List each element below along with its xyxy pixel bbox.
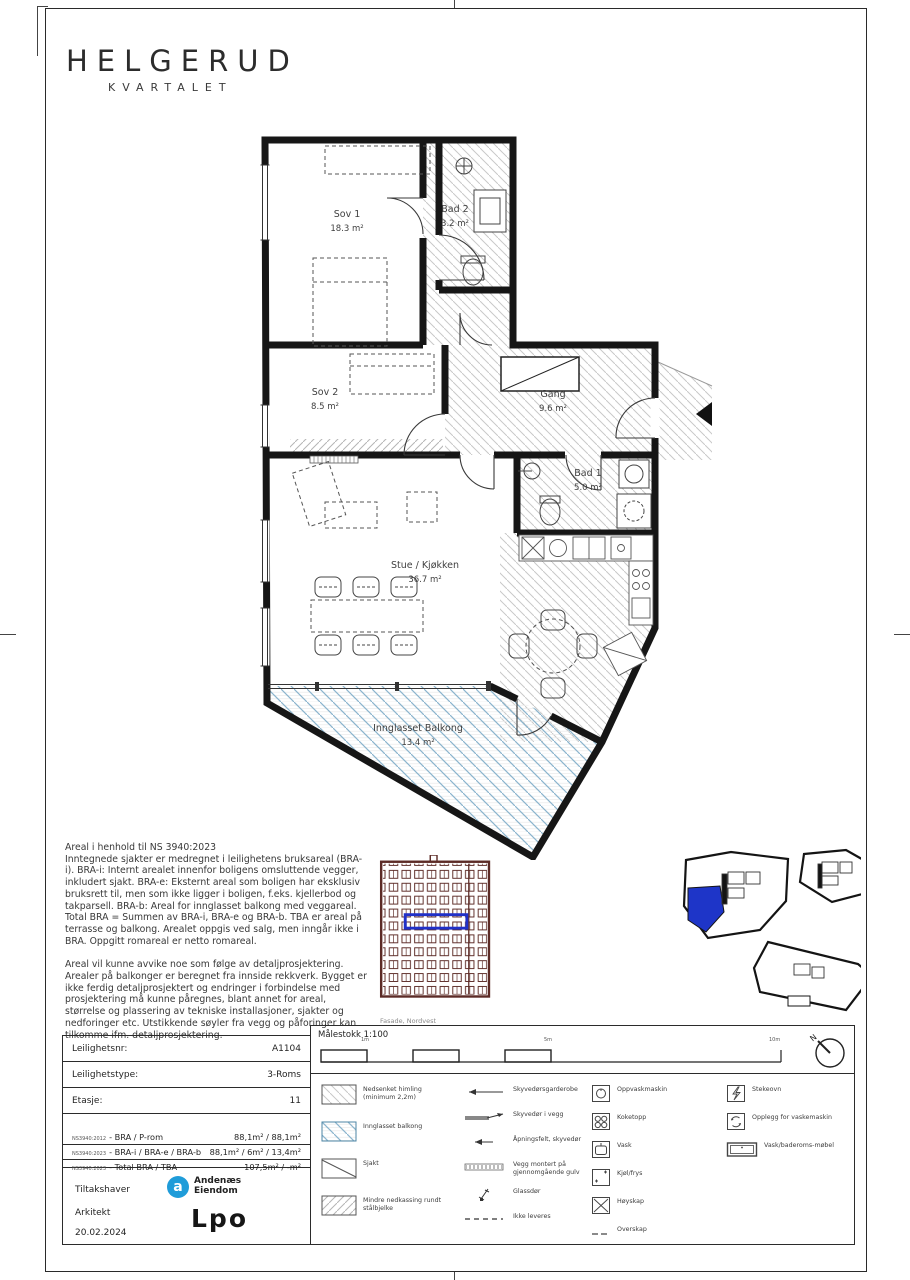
room-name: Bad 2 [441,203,469,218]
entry-opening [651,398,660,438]
legend-grid: Nedsenket himling (minimum 2,2m) Innglas… [311,1074,854,1252]
shaft-icon [321,1158,357,1180]
row-value: A1104 [272,1044,301,1054]
legend-label: Mindre nedkassing rundt stålbjelke [363,1195,445,1213]
tall-cabinet-icon [591,1196,611,1215]
room-label-stue-kjokken: Stue / Kjøkken 36.7 m² [391,559,459,587]
legend-label: Sjakt [363,1158,379,1168]
sliding-door-symbol [310,456,358,463]
legend-label: Høyskap [617,1196,644,1206]
legend-label: Overskap [617,1224,647,1234]
facade-elevation: Fasade, Nordvest [372,855,504,1025]
room-name: Innglasset Balkong [373,722,463,737]
room-name: Bad 1 [574,467,602,482]
not-delivered-icon [461,1211,507,1227]
key-plans [676,846,861,1016]
andenaes-logo-icon: a [167,1176,189,1198]
room-name: Sov 2 [311,386,339,401]
legend-label: Innglasset balkong [363,1121,422,1131]
crop-mark-bottom-center [454,1272,455,1280]
brand-logo: HELGERUD KVARTALET [66,44,299,94]
facade-svg [372,855,502,1009]
north-arrow-icon: N [804,1028,848,1072]
row-label: - BRA / P-rom [109,1132,163,1142]
beam-boxing-hatch-icon [321,1195,357,1217]
standard-ref: NS3940:2012 [72,1136,106,1142]
scale-tick-1m: 1m [361,1037,369,1043]
legend-label: Kjøl/frys [617,1168,642,1178]
row-value: 11 [290,1096,301,1106]
notes-title: Areal i henhold til NS 3940:2023 [65,842,367,854]
room-label-gang: Gang 9.6 m² [539,388,567,416]
apartment-info-table: Leilighetsnr: A1104 Leilighetstype: 3-Ro… [62,1035,310,1168]
legend-item: Koketopp [591,1112,726,1131]
room-label-bad2: Bad 2 3.2 m² [441,203,469,231]
legend-label: Glassdør [513,1186,541,1196]
room-label-sov1: Sov 1 18.3 m² [330,208,363,236]
crop-mark-mid-right [894,634,910,635]
scale-bar [317,1044,787,1068]
legend-item: Skyvedør i vegg [461,1109,591,1125]
legend-column-1: Nedsenket himling (minimum 2,2m) Innglas… [321,1084,461,1252]
andenaes-logo: a Andenæs Eiendom [167,1176,241,1198]
legend-item: Vask/baderoms-møbel [726,1140,856,1159]
crop-mark-top-left-v [37,6,38,56]
crop-mark-top-center [454,0,455,8]
washing-machine-hookup-icon [726,1112,746,1131]
legend-label: Koketopp [617,1112,646,1122]
bathroom-vanity-icon [726,1140,758,1159]
area-notes: Areal i henhold til NS 3940:2023 Inntegn… [65,842,367,1053]
legend-item: Høyskap [591,1196,726,1215]
room-area: 36.7 m² [391,574,459,587]
cooktop-icon [591,1112,611,1131]
drawing-date: 20.02.2024 [75,1228,127,1238]
room-name: Sov 1 [330,208,363,223]
north-label: N [808,1033,818,1044]
legend-item: Ikke leveres [461,1211,591,1227]
wall-on-continuous-floor-icon [461,1159,507,1175]
legend-item: Åpningsfelt, skyvedør [461,1134,591,1150]
scale-tick-10m: 10m [769,1037,780,1043]
room-label-sov2: Sov 2 8.5 m² [311,386,339,414]
key-plans-svg [676,846,861,1016]
row-label: - BRA-i / BRA-e / BRA-b [109,1147,201,1157]
legend-label: Vask/baderoms-møbel [764,1140,834,1150]
table-row: Leilighetstype: 3-Roms [63,1062,310,1088]
legend-item: Nedsenket himling (minimum 2,2m) [321,1084,461,1106]
room-area: 18.3 m² [330,223,363,236]
role-tiltakshaver: Tiltakshaver [75,1185,130,1195]
plan-sheet: HELGERUD KVARTALET [0,0,910,1280]
row-label: Leilighetstype: [72,1070,138,1080]
brand-name: HELGERUD [66,44,299,78]
legend-item: Vask [591,1140,726,1159]
wall-cabinet-icon [591,1224,611,1243]
role-arkitekt: Arkitekt [75,1208,110,1218]
lowered-ceiling-hatch-icon [321,1084,357,1106]
sliding-wardrobe-door-icon [461,1084,507,1100]
legend-item: Mindre nedkassing rundt stålbjelke [321,1195,461,1217]
oven-icon [726,1084,746,1103]
pocket-door-icon [461,1109,507,1125]
room-name: Gang [539,388,567,403]
table-row: Leilighetsnr: A1104 [63,1036,310,1062]
legend-item: Innglasset balkong [321,1121,461,1143]
table-row-area: NS3940:2023 - BRA-i / BRA-e / BRA-b 88,1… [63,1145,310,1160]
row-value: 88,1m² / 88,1m² [234,1132,301,1142]
legend-label: Oppvaskmaskin [617,1084,667,1094]
notes-paragraph-1: Inntegnede sjakter er medregnet i leilig… [65,854,367,948]
legend-item: Opplegg for vaskemaskin [726,1112,856,1131]
legend-item: Stekeovn [726,1084,856,1103]
glazed-balcony-hatch-icon [321,1121,357,1143]
floorplan-svg [255,130,715,860]
standard-ref: NS3940:2023 [72,1151,106,1157]
title-block: Tiltakshaver Arkitekt 20.02.2024 a Anden… [62,1168,310,1245]
legend-label: Skyvedør i vegg [513,1109,564,1119]
facade-caption: Fasade, Nordvest [380,1017,504,1025]
room-area: 3.2 m² [441,218,469,231]
row-value: 3-Roms [267,1070,301,1080]
room-name: Stue / Kjøkken [391,559,459,574]
legend-label: Stekeovn [752,1084,781,1094]
fridge-freezer-icon [591,1168,611,1187]
room-label-balkong: Innglasset Balkong 13.4 m² [373,722,463,750]
row-label: Leilighetsnr: [72,1044,127,1054]
room-area: 8.5 m² [311,401,339,414]
dishwasher-icon [591,1084,611,1103]
legend-label: Skyvedørsgarderobe [513,1084,578,1094]
crop-mark-mid-left [0,634,16,635]
legend-item: Kjøl/frys [591,1168,726,1187]
table-spacer [63,1114,310,1130]
scale-tick-5m: 5m [544,1037,552,1043]
glass-door-icon [461,1186,507,1202]
room-label-bad1: Bad 1 5.0 m² [574,467,602,495]
legend-item: Oppvaskmaskin [591,1084,726,1103]
opening-sliding-door-icon [461,1134,507,1150]
legend-label: Nedsenket himling (minimum 2,2m) [363,1084,445,1102]
legend-label: Åpningsfelt, skyvedør [513,1134,581,1144]
legend-label: Vask [617,1140,632,1150]
room-area: 13.4 m² [373,737,463,750]
key-plan-3 [754,942,861,1010]
legend-label: Ikke leveres [513,1211,551,1221]
scale-title: Målestokk 1:100 [318,1030,388,1040]
room-area: 5.0 m² [574,482,602,495]
legend-item: Glassdør [461,1186,591,1202]
crop-mark-top-left-h [37,6,48,7]
legend-column-4: Stekeovn Opplegg for vaskemaskin Vask/ba… [726,1084,856,1252]
room-area: 9.6 m² [539,403,567,416]
lpo-logo: Lpo [191,1204,248,1233]
floorplan: Sov 1 18.3 m² Bad 2 3.2 m² Sov 2 8.5 m² … [255,130,715,860]
sink-icon [591,1140,611,1159]
table-row: Etasje: 11 [63,1088,310,1114]
legend-item: Overskap [591,1224,726,1243]
legend-column-2: Skyvedørsgarderobe Skyvedør i vegg Åpnin… [461,1084,591,1252]
legend-column-3: Oppvaskmaskin Koketopp Vask Kjøl/frys Hø… [591,1084,726,1252]
andenaes-logo-line2: Eiendom [194,1187,241,1197]
row-value: 88,1m² / 6m² / 13,4m² [210,1147,301,1157]
legend-label: Opplegg for vaskemaskin [752,1112,832,1122]
brand-subtitle: KVARTALET [108,81,299,94]
legend-item: Vegg montert på gjennomgående gulv [461,1159,591,1177]
sjakt-box [501,357,579,391]
legend-item: Skyvedørsgarderobe [461,1084,591,1100]
legend-label: Vegg montert på gjennomgående gulv [513,1159,591,1177]
legend-item: Sjakt [321,1158,461,1180]
legend: Målestokk 1:100 1m 5m 10m N Nedsenket [310,1025,855,1245]
row-label: Etasje: [72,1096,103,1106]
scale-bar-section: Målestokk 1:100 1m 5m 10m N [311,1026,854,1074]
table-row-area: NS3940:2012 - BRA / P-rom 88,1m² / 88,1m… [63,1130,310,1145]
